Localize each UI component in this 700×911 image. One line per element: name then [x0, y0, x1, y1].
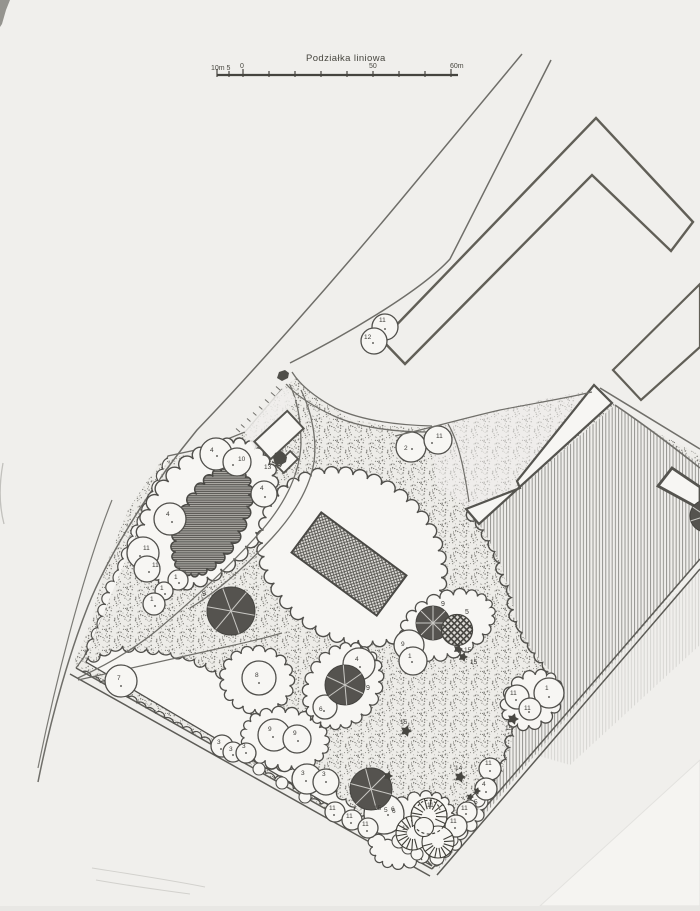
- svg-text:50: 50: [369, 63, 377, 70]
- svg-text:11: 11: [461, 805, 468, 812]
- svg-text:11: 11: [346, 813, 353, 820]
- svg-text:9: 9: [441, 601, 445, 608]
- svg-text:4: 4: [260, 485, 264, 492]
- svg-text:5: 5: [474, 799, 478, 806]
- svg-text:15: 15: [470, 659, 478, 666]
- svg-text:11: 11: [329, 805, 336, 812]
- svg-text:11: 11: [427, 802, 434, 809]
- svg-text:9: 9: [202, 591, 206, 598]
- svg-text:4: 4: [482, 781, 486, 788]
- svg-text:1: 1: [545, 685, 549, 692]
- svg-text:3: 3: [322, 771, 326, 778]
- svg-text:11: 11: [510, 690, 517, 697]
- svg-text:15: 15: [374, 805, 382, 812]
- svg-text:3: 3: [229, 746, 233, 753]
- svg-text:0: 0: [240, 63, 244, 70]
- svg-text:11: 11: [143, 545, 150, 552]
- svg-text:9: 9: [366, 685, 370, 692]
- svg-text:11: 11: [485, 760, 492, 767]
- svg-text:3: 3: [217, 739, 221, 746]
- svg-text:1: 1: [174, 574, 178, 581]
- svg-text:15: 15: [400, 719, 408, 726]
- svg-text:9: 9: [268, 726, 272, 733]
- svg-text:4: 4: [166, 511, 170, 518]
- svg-text:3: 3: [301, 770, 305, 777]
- svg-text:11: 11: [436, 433, 443, 440]
- svg-text:1: 1: [160, 585, 164, 592]
- svg-text:10m 5: 10m 5: [211, 65, 231, 72]
- svg-text:8: 8: [255, 672, 259, 679]
- svg-text:11: 11: [379, 317, 386, 324]
- svg-text:1: 1: [408, 653, 412, 660]
- svg-text:2: 2: [404, 445, 408, 452]
- svg-text:9: 9: [401, 641, 405, 648]
- svg-text:11: 11: [152, 562, 159, 569]
- svg-text:3: 3: [242, 743, 246, 750]
- svg-text:11: 11: [450, 818, 457, 825]
- svg-text:11: 11: [362, 821, 369, 828]
- svg-text:11: 11: [524, 705, 531, 712]
- svg-text:15: 15: [464, 647, 472, 654]
- svg-text:1: 1: [150, 596, 154, 603]
- svg-text:13: 13: [264, 464, 272, 471]
- svg-text:14: 14: [455, 765, 463, 772]
- svg-text:15: 15: [505, 725, 513, 732]
- svg-text:6: 6: [392, 808, 396, 815]
- svg-text:10: 10: [238, 456, 246, 463]
- svg-text:12: 12: [364, 334, 372, 341]
- svg-text:60m: 60m: [450, 63, 464, 70]
- svg-text:9: 9: [293, 730, 297, 737]
- svg-text:5: 5: [465, 609, 469, 616]
- svg-text:5: 5: [384, 807, 388, 814]
- svg-text:4: 4: [210, 447, 214, 454]
- svg-text:4: 4: [355, 656, 359, 663]
- svg-text:11: 11: [402, 825, 409, 832]
- svg-text:7: 7: [117, 675, 121, 682]
- svg-text:6: 6: [319, 706, 323, 713]
